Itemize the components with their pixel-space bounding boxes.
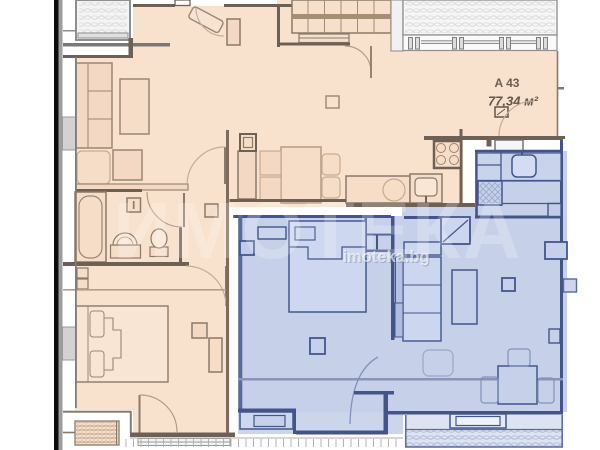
svg-text:A 43: A 43 (495, 76, 520, 90)
svg-text:ИМОТЕКА: ИМОТЕКА (113, 186, 522, 275)
svg-text:imoteka.bg: imoteka.bg (342, 248, 429, 266)
